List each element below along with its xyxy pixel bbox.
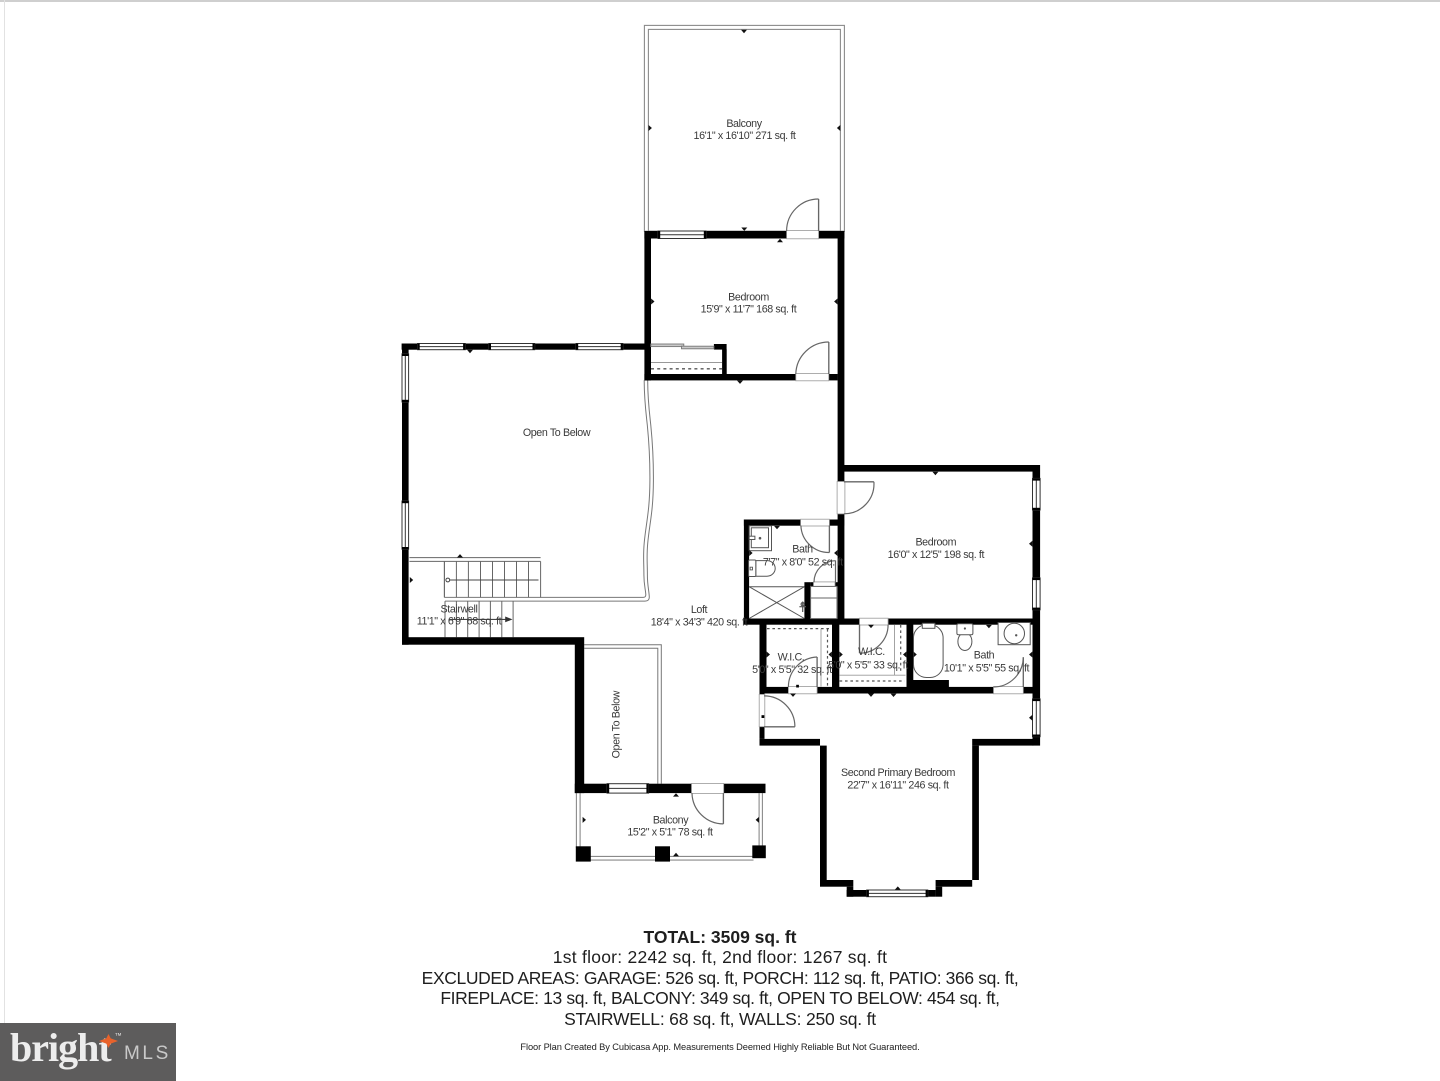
- svg-text:Balcony: Balcony: [653, 814, 689, 826]
- svg-text:5'0" x 5'5" 32 sq. ft: 5'0" x 5'5" 32 sq. ft: [752, 664, 832, 676]
- svg-text:Open To Below: Open To Below: [611, 690, 623, 758]
- svg-text:W.I.C.: W.I.C.: [778, 652, 805, 664]
- svg-text:22'7" x 16'11" 246 sq. ft: 22'7" x 16'11" 246 sq. ft: [847, 780, 949, 792]
- svg-text:Bedroom: Bedroom: [728, 292, 769, 304]
- svg-text:11'1" x 6'9" 68 sq. ft: 11'1" x 6'9" 68 sq. ft: [417, 615, 502, 627]
- svg-text:Second Primary Bedroom: Second Primary Bedroom: [841, 767, 955, 779]
- svg-text:Bedroom: Bedroom: [915, 537, 956, 549]
- svg-text:Stairwell: Stairwell: [441, 604, 478, 616]
- svg-text:Balcony: Balcony: [726, 118, 762, 130]
- svg-text:Bath: Bath: [792, 544, 813, 556]
- svg-text:16'1" x 16'10" 271 sq. ft: 16'1" x 16'10" 271 sq. ft: [694, 130, 796, 142]
- svg-text:7'7" x 8'0" 52 sq. ft: 7'7" x 8'0" 52 sq. ft: [763, 556, 843, 568]
- svg-text:10'1" x 5'5" 55 sq. ft: 10'1" x 5'5" 55 sq. ft: [944, 663, 1030, 675]
- svg-text:15'9" x 11'7" 168 sq. ft: 15'9" x 11'7" 168 sq. ft: [701, 304, 797, 316]
- svg-text:18'4" x 34'3" 420 sq. ft: 18'4" x 34'3" 420 sq. ft: [651, 616, 748, 628]
- svg-text:5'0" x 5'5" 33 sq. ft: 5'0" x 5'5" 33 sq. ft: [828, 659, 908, 671]
- svg-text:Loft: Loft: [691, 604, 708, 616]
- svg-text:15'2" x 5'1" 78 sq. ft: 15'2" x 5'1" 78 sq. ft: [627, 827, 713, 839]
- svg-text:W.I.C.: W.I.C.: [858, 646, 885, 658]
- svg-text:Open To Below: Open To Below: [523, 427, 591, 439]
- svg-text:Bath: Bath: [974, 650, 995, 662]
- svg-text:16'0" x 12'5" 198 sq. ft: 16'0" x 12'5" 198 sq. ft: [888, 549, 985, 561]
